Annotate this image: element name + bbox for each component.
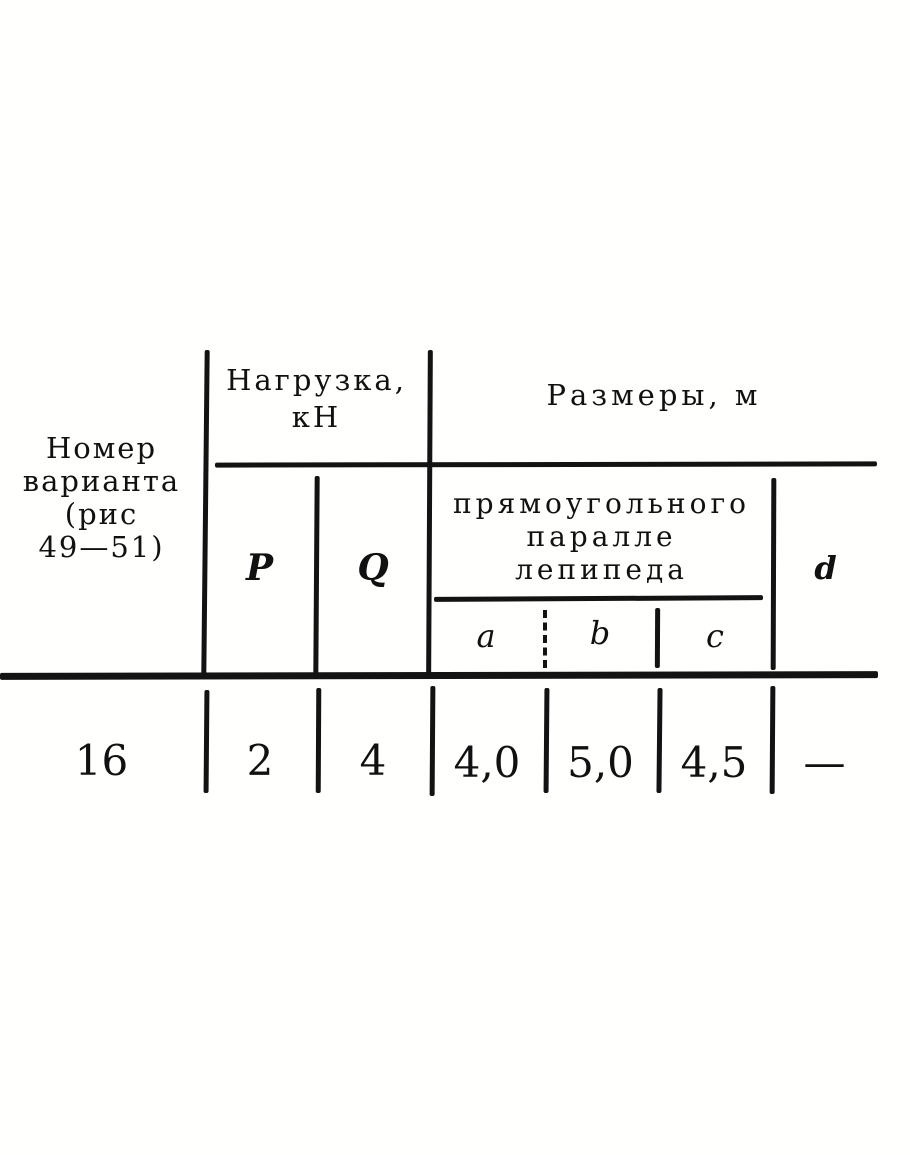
cell-Q: 4: [316, 740, 430, 782]
variant-column-header: Номер варианта (рис 49—51): [0, 432, 203, 564]
cell-b: 5,0: [544, 742, 657, 784]
scanned-document-page: Номер варианта (рис 49—51) Нагрузка, кН …: [0, 0, 910, 1155]
variant-header-line-2: варианта: [0, 465, 203, 498]
parallelepiped-subheader: прямоугольного паралле лепипеда: [430, 487, 773, 586]
column-header-b: b: [543, 617, 657, 649]
load-header-line-2: кН: [203, 399, 430, 436]
column-header-d: d: [773, 552, 878, 584]
rule-horizontal-abc: [434, 595, 763, 602]
cell-d: —: [771, 742, 878, 784]
cell-P: 2: [204, 740, 316, 782]
column-header-c: c: [657, 620, 773, 652]
parallelepiped-line-2: паралле: [430, 520, 773, 553]
parallelepiped-line-3: лепипеда: [430, 553, 773, 586]
parallelepiped-line-1: прямоугольного: [430, 487, 773, 520]
load-header-line-1: Нагрузка,: [203, 362, 430, 399]
cell-c: 4,5: [657, 742, 771, 784]
load-group-header: Нагрузка, кН: [203, 362, 430, 436]
cell-a: 4,0: [430, 742, 544, 784]
column-header-Q: Q: [316, 550, 430, 586]
rule-horizontal-subheader: [215, 461, 877, 467]
dimensions-group-header: Размеры, м: [430, 378, 878, 412]
variant-header-line-3: (рис: [0, 498, 203, 531]
rule-horizontal-main: [0, 671, 878, 680]
column-header-P: P: [203, 550, 316, 586]
variant-header-line-1: Номер: [0, 432, 203, 465]
cell-variant: 16: [0, 740, 203, 782]
variant-header-line-4: 49—51): [0, 531, 203, 564]
column-header-a: a: [429, 620, 543, 652]
